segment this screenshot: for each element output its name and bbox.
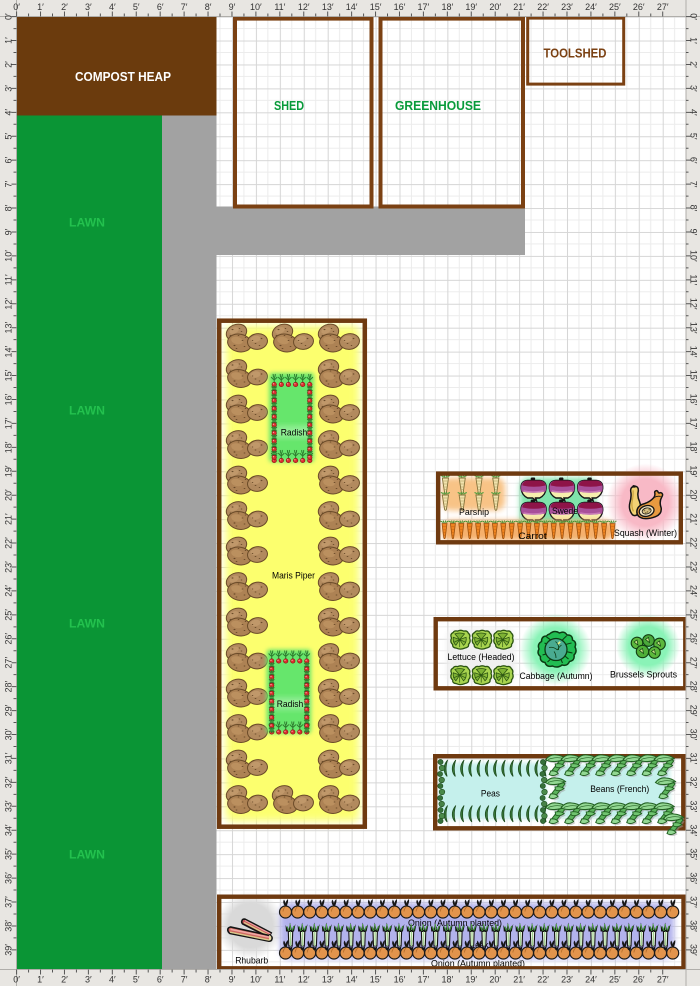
svg-text:26′: 26′ <box>689 633 699 645</box>
svg-text:1′: 1′ <box>4 37 14 44</box>
svg-text:11′: 11′ <box>274 975 285 985</box>
svg-text:1′: 1′ <box>689 37 699 44</box>
svg-text:4′: 4′ <box>109 2 116 12</box>
svg-text:24′: 24′ <box>689 585 699 597</box>
svg-text:32′: 32′ <box>4 776 14 788</box>
svg-text:0′: 0′ <box>4 13 14 20</box>
svg-text:17′: 17′ <box>4 417 14 429</box>
svg-text:1′: 1′ <box>37 2 44 12</box>
svg-text:Maris Piper: Maris Piper <box>272 571 315 582</box>
svg-text:1′: 1′ <box>37 975 44 985</box>
svg-text:27′: 27′ <box>4 657 14 669</box>
svg-text:6′: 6′ <box>157 2 164 12</box>
svg-text:Swede: Swede <box>552 506 578 517</box>
svg-text:19′: 19′ <box>4 465 14 477</box>
svg-text:Rhubarb: Rhubarb <box>235 956 268 967</box>
svg-text:10′: 10′ <box>4 250 14 262</box>
svg-text:7′: 7′ <box>181 2 188 12</box>
svg-text:3′: 3′ <box>85 2 92 12</box>
svg-text:Squash (Winter): Squash (Winter) <box>614 528 677 539</box>
svg-text:6′: 6′ <box>4 157 14 164</box>
svg-text:5′: 5′ <box>689 133 699 140</box>
svg-text:9′: 9′ <box>229 975 236 985</box>
svg-text:22′: 22′ <box>4 537 14 549</box>
svg-text:Parsnip: Parsnip <box>459 507 489 518</box>
svg-text:0′: 0′ <box>689 13 699 20</box>
svg-text:13′: 13′ <box>4 322 14 334</box>
svg-text:3′: 3′ <box>4 85 14 92</box>
svg-text:SHED: SHED <box>274 99 304 113</box>
svg-text:17′: 17′ <box>418 975 430 985</box>
svg-text:22′: 22′ <box>537 975 549 985</box>
svg-text:27′: 27′ <box>689 657 699 669</box>
svg-text:34′: 34′ <box>689 824 699 836</box>
svg-text:12′: 12′ <box>4 298 14 310</box>
svg-text:2′: 2′ <box>61 2 68 12</box>
svg-text:36′: 36′ <box>4 872 14 884</box>
svg-text:0′: 0′ <box>13 2 20 12</box>
svg-text:31′: 31′ <box>689 753 699 765</box>
svg-text:20′: 20′ <box>489 975 501 985</box>
svg-text:24′: 24′ <box>585 975 597 985</box>
svg-text:28′: 28′ <box>4 680 14 692</box>
svg-text:2′: 2′ <box>61 975 68 985</box>
svg-text:13′: 13′ <box>322 975 334 985</box>
svg-text:25′: 25′ <box>689 609 699 621</box>
svg-text:7′: 7′ <box>181 975 188 985</box>
svg-text:37′: 37′ <box>689 896 699 908</box>
svg-text:11′: 11′ <box>274 2 285 12</box>
svg-text:15′: 15′ <box>4 369 14 381</box>
svg-text:4′: 4′ <box>4 109 14 116</box>
svg-text:2′: 2′ <box>689 61 699 68</box>
svg-text:29′: 29′ <box>4 704 14 716</box>
svg-text:33′: 33′ <box>4 800 14 812</box>
svg-text:7′: 7′ <box>4 180 14 187</box>
svg-text:10′: 10′ <box>689 250 699 262</box>
svg-text:25′: 25′ <box>4 609 14 621</box>
svg-text:27′: 27′ <box>657 975 669 985</box>
svg-text:35′: 35′ <box>689 848 699 860</box>
svg-text:27′: 27′ <box>657 2 669 12</box>
svg-text:11′: 11′ <box>4 274 14 285</box>
svg-text:21′: 21′ <box>513 2 525 12</box>
svg-text:12′: 12′ <box>298 2 310 12</box>
svg-text:11′: 11′ <box>689 274 699 285</box>
svg-text:28′: 28′ <box>689 681 699 693</box>
svg-text:24′: 24′ <box>585 2 597 12</box>
svg-text:21′: 21′ <box>513 975 525 985</box>
svg-text:30′: 30′ <box>4 728 14 740</box>
svg-text:9′: 9′ <box>229 2 236 12</box>
svg-text:23′: 23′ <box>561 975 573 985</box>
svg-text:16′: 16′ <box>394 2 406 12</box>
svg-text:39′: 39′ <box>4 944 14 956</box>
svg-text:23′: 23′ <box>689 561 699 573</box>
svg-text:15′: 15′ <box>689 370 699 382</box>
svg-text:LAWN: LAWN <box>69 404 105 418</box>
svg-text:13′: 13′ <box>322 2 334 12</box>
svg-text:3′: 3′ <box>85 975 92 985</box>
svg-text:22′: 22′ <box>537 2 549 12</box>
svg-text:26′: 26′ <box>4 633 14 645</box>
svg-text:25′: 25′ <box>609 975 621 985</box>
svg-text:9′: 9′ <box>689 229 699 236</box>
svg-text:Radish: Radish <box>277 699 304 710</box>
svg-text:21′: 21′ <box>4 513 14 525</box>
svg-text:18′: 18′ <box>689 441 699 453</box>
svg-text:24′: 24′ <box>4 585 14 597</box>
svg-text:3′: 3′ <box>689 85 699 92</box>
svg-text:12′: 12′ <box>298 975 310 985</box>
svg-text:13′: 13′ <box>689 322 699 334</box>
svg-text:16′: 16′ <box>394 975 406 985</box>
svg-text:18′: 18′ <box>441 975 453 985</box>
svg-text:10′: 10′ <box>250 2 262 12</box>
svg-text:34′: 34′ <box>4 824 14 836</box>
svg-text:5′: 5′ <box>4 133 14 140</box>
svg-text:Beans (French): Beans (French) <box>590 784 649 795</box>
svg-text:4′: 4′ <box>109 975 116 985</box>
svg-text:19′: 19′ <box>689 465 699 477</box>
svg-text:29′: 29′ <box>689 705 699 717</box>
svg-text:30′: 30′ <box>689 729 699 741</box>
svg-text:LAWN: LAWN <box>69 617 105 631</box>
svg-text:14′: 14′ <box>689 346 699 358</box>
svg-text:18′: 18′ <box>4 441 14 453</box>
svg-text:0′: 0′ <box>13 975 20 985</box>
svg-text:38′: 38′ <box>4 920 14 932</box>
svg-text:Cabbage (Autumn): Cabbage (Autumn) <box>520 671 593 682</box>
svg-text:37′: 37′ <box>4 896 14 908</box>
svg-text:22′: 22′ <box>689 537 699 549</box>
svg-text:14′: 14′ <box>346 2 358 12</box>
svg-text:9′: 9′ <box>4 228 14 235</box>
svg-text:Brussels Sprouts: Brussels Sprouts <box>610 669 677 680</box>
svg-text:23′: 23′ <box>4 561 14 573</box>
svg-text:35′: 35′ <box>4 848 14 860</box>
svg-text:COMPOST HEAP: COMPOST HEAP <box>75 69 171 84</box>
svg-text:19′: 19′ <box>465 975 477 985</box>
svg-text:20′: 20′ <box>489 2 501 12</box>
svg-text:TOOLSHED: TOOLSHED <box>544 47 607 61</box>
svg-text:31′: 31′ <box>4 752 14 764</box>
svg-text:17′: 17′ <box>418 2 430 12</box>
svg-text:6′: 6′ <box>157 975 164 985</box>
svg-text:38′: 38′ <box>689 920 699 932</box>
svg-text:LAWN: LAWN <box>69 848 105 862</box>
svg-text:4′: 4′ <box>689 109 699 116</box>
svg-text:14′: 14′ <box>346 975 358 985</box>
svg-text:26′: 26′ <box>633 2 645 12</box>
svg-text:10′: 10′ <box>250 975 262 985</box>
svg-text:8′: 8′ <box>205 975 212 985</box>
svg-text:12′: 12′ <box>689 298 699 310</box>
svg-text:8′: 8′ <box>4 204 14 211</box>
svg-text:17′: 17′ <box>689 418 699 430</box>
svg-text:20′: 20′ <box>4 489 14 501</box>
svg-text:Peas: Peas <box>481 789 500 800</box>
svg-text:Lettuce (Headed): Lettuce (Headed) <box>448 652 515 663</box>
svg-text:18′: 18′ <box>441 2 453 12</box>
svg-text:6′: 6′ <box>689 157 699 164</box>
svg-text:39′: 39′ <box>689 944 699 956</box>
svg-text:2′: 2′ <box>4 61 14 68</box>
svg-text:21′: 21′ <box>689 513 699 525</box>
svg-text:8′: 8′ <box>689 205 699 212</box>
svg-text:15′: 15′ <box>370 975 382 985</box>
svg-text:23′: 23′ <box>561 2 573 12</box>
svg-text:14′: 14′ <box>4 345 14 357</box>
svg-text:16′: 16′ <box>4 393 14 405</box>
svg-text:36′: 36′ <box>689 872 699 884</box>
svg-text:16′: 16′ <box>689 394 699 406</box>
svg-text:19′: 19′ <box>465 2 477 12</box>
svg-text:5′: 5′ <box>133 2 140 12</box>
svg-text:20′: 20′ <box>689 489 699 501</box>
svg-text:5′: 5′ <box>133 975 140 985</box>
svg-text:LAWN: LAWN <box>69 216 105 230</box>
svg-text:15′: 15′ <box>370 2 382 12</box>
svg-text:8′: 8′ <box>205 2 212 12</box>
svg-text:25′: 25′ <box>609 2 621 12</box>
svg-text:26′: 26′ <box>633 975 645 985</box>
svg-text:GREENHOUSE: GREENHOUSE <box>395 99 481 113</box>
svg-text:Radish: Radish <box>281 427 308 438</box>
svg-text:32′: 32′ <box>689 777 699 789</box>
svg-text:33′: 33′ <box>689 800 699 812</box>
svg-text:7′: 7′ <box>689 181 699 188</box>
